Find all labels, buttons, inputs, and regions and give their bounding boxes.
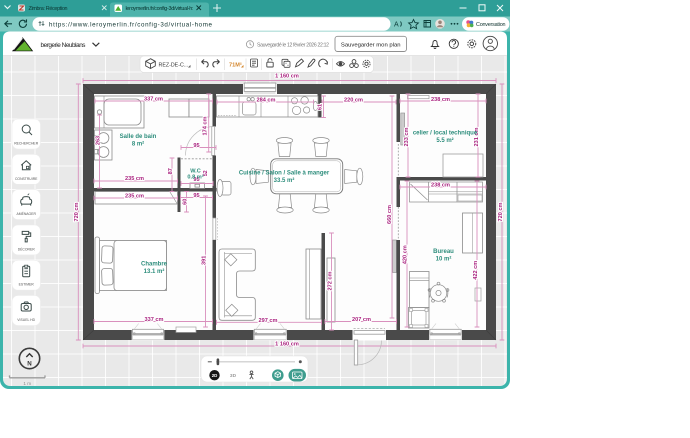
svg-text:297 cm: 297 cm	[259, 318, 278, 324]
svg-text:391: 391	[201, 256, 207, 265]
svg-text:A: A	[394, 22, 399, 29]
svg-text:Sauvegarder mon plan: Sauvegarder mon plan	[341, 42, 401, 48]
svg-text:238 cm: 238 cm	[431, 97, 450, 103]
svg-text:95: 95	[193, 143, 199, 149]
svg-text:DÉCORER: DÉCORER	[18, 246, 36, 251]
svg-text:284 cm: 284 cm	[257, 98, 276, 104]
svg-text:bergerie Neublans: bergerie Neublans	[41, 42, 86, 49]
svg-text:233 cm: 233 cm	[404, 127, 410, 146]
svg-text:422 cm: 422 cm	[473, 261, 479, 280]
svg-text:1 m: 1 m	[23, 381, 31, 386]
svg-text:10 m²: 10 m²	[436, 256, 452, 263]
svg-text:Salle de bain: Salle de bain	[120, 134, 157, 140]
svg-text:720 cm: 720 cm	[74, 202, 80, 221]
svg-text:Zimbra: Réception: Zimbra: Réception	[29, 6, 68, 12]
svg-text:Sauvegardé le 12 février 2026: Sauvegardé le 12 février 2026 22:12	[257, 43, 329, 49]
svg-text:71M²: 71M²	[229, 62, 242, 69]
svg-text:660 cm: 660 cm	[387, 205, 393, 224]
svg-text:235 cm: 235 cm	[125, 194, 144, 200]
svg-text:leroymerlin.fr/config-3d/virtu: leroymerlin.fr/config-3d/virtual-h:	[126, 6, 194, 12]
svg-text:337 cm: 337 cm	[145, 317, 164, 323]
svg-text:VISUEL HD: VISUEL HD	[17, 318, 35, 322]
svg-text:1 160 cm: 1 160 cm	[275, 341, 299, 347]
svg-text:https://www.leroymerlin.fr/con: https://www.leroymerlin.fr/config-3d/vir…	[49, 21, 213, 28]
svg-text:13.1 m²: 13.1 m²	[144, 268, 165, 275]
svg-text:Bureau: Bureau	[433, 249, 454, 255]
svg-text:celier / local technique: celier / local technique	[413, 131, 478, 137]
svg-text:272 cm: 272 cm	[328, 271, 334, 290]
svg-text:52: 52	[203, 170, 209, 176]
svg-text:420 cm: 420 cm	[403, 245, 409, 264]
svg-text:238 cm: 238 cm	[431, 183, 450, 189]
svg-text:REZ-DE-C...: REZ-DE-C...	[159, 62, 189, 68]
svg-text:1 160 cm: 1 160 cm	[275, 73, 299, 79]
svg-text:87: 87	[168, 168, 174, 174]
svg-text:60: 60	[182, 199, 188, 205]
svg-text:N: N	[27, 361, 32, 368]
svg-text:337 cm: 337 cm	[144, 97, 163, 103]
svg-text:220 cm: 220 cm	[344, 98, 363, 104]
svg-text:Conversation: Conversation	[476, 22, 506, 28]
svg-text:263: 263	[96, 136, 102, 145]
svg-text:5.5 m²: 5.5 m²	[436, 137, 453, 144]
svg-text:95: 95	[193, 193, 199, 199]
svg-text:CONSTRUIRE: CONSTRUIRE	[15, 177, 38, 181]
svg-text:720 cm: 720 cm	[498, 202, 504, 221]
svg-text:Chambre: Chambre	[141, 262, 168, 268]
svg-text:8 m²: 8 m²	[132, 140, 144, 147]
svg-text:Cuisine / Salon / Salle à mang: Cuisine / Salon / Salle à manger	[239, 171, 330, 177]
svg-text:61: 61	[318, 104, 324, 110]
svg-text:174 cm: 174 cm	[203, 116, 209, 135]
svg-text:W.C: W.C	[190, 168, 201, 174]
svg-text:RECHERCHER: RECHERCHER	[14, 142, 38, 146]
svg-text:207 cm: 207 cm	[352, 317, 371, 323]
svg-text:0.8 m²: 0.8 m²	[187, 174, 203, 181]
svg-text:AMÉNAGER: AMÉNAGER	[16, 211, 36, 216]
svg-text:ESTIMER: ESTIMER	[19, 283, 35, 287]
svg-text:2D: 2D	[212, 373, 218, 378]
svg-text:235 cm: 235 cm	[125, 176, 144, 182]
svg-text:33.5 m²: 33.5 m²	[274, 177, 295, 184]
svg-text:3D: 3D	[230, 373, 237, 379]
